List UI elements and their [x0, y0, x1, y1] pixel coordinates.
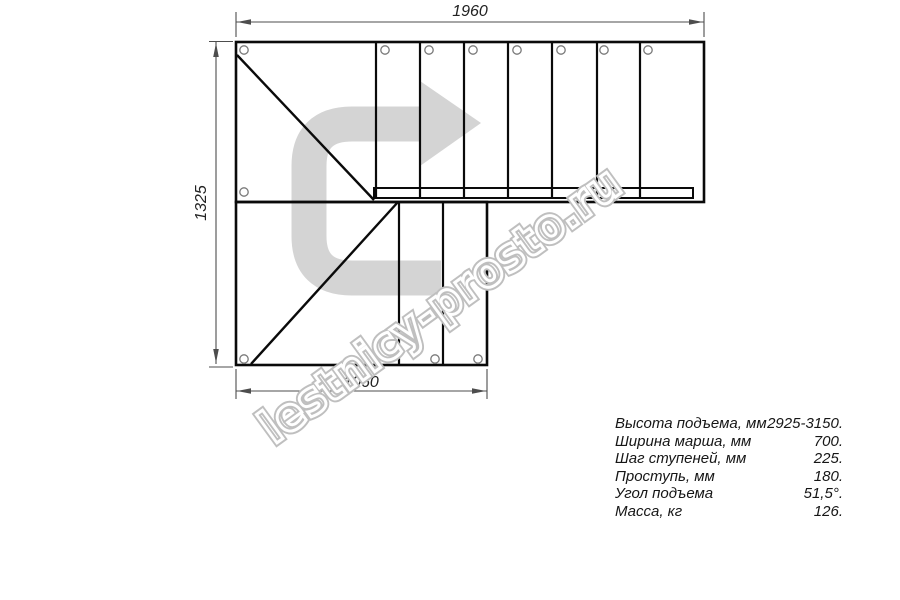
spec-label: Шаг ступеней, мм [615, 450, 746, 468]
dim-arrow [213, 349, 219, 363]
dim-arrow [472, 388, 486, 393]
spec-value: 225. [814, 450, 843, 468]
mount-hole [600, 46, 608, 54]
dim-left-label: 1325 [193, 185, 210, 221]
direction-arrow [309, 81, 481, 278]
dim-top-label: 1960 [452, 3, 488, 20]
mount-hole [469, 46, 477, 54]
spec-value: 51,5°. [804, 485, 843, 503]
direction-arrow-head [420, 81, 481, 166]
dim-arrow [237, 388, 251, 393]
mount-hole [240, 188, 248, 196]
spec-label: Проступь, мм [615, 468, 715, 486]
spec-table: Высота подъема, мм 2925-3150. Ширина мар… [615, 415, 843, 520]
spec-row: Масса, кг 126. [615, 503, 843, 521]
dimension-left: 1325 [193, 42, 233, 368]
upper-stringer [374, 188, 693, 198]
dim-arrow [237, 19, 251, 24]
spec-label: Ширина марша, мм [615, 433, 751, 451]
mount-hole [381, 46, 389, 54]
dimension-top: 1960 [236, 3, 704, 37]
spec-value: 180. [814, 468, 843, 486]
spec-row: Ширина марша, мм 700. [615, 433, 843, 451]
spec-value: 126. [814, 503, 843, 521]
spec-row: Проступь, мм 180. [615, 468, 843, 486]
mount-hole [513, 46, 521, 54]
mount-hole [557, 46, 565, 54]
spec-row: Угол подъема 51,5°. [615, 485, 843, 503]
dim-arrow [213, 43, 219, 57]
spec-row: Шаг ступеней, мм 225. [615, 450, 843, 468]
mount-hole [240, 46, 248, 54]
spec-label: Высота подъема, мм [615, 415, 767, 433]
mount-hole [644, 46, 652, 54]
mount-hole [240, 355, 248, 363]
mount-hole [431, 355, 439, 363]
spec-label: Угол подъема [615, 485, 713, 503]
spec-label: Масса, кг [615, 503, 682, 521]
spec-value: 700. [814, 433, 843, 451]
mount-hole [474, 355, 482, 363]
mount-hole [425, 46, 433, 54]
spec-row: Высота подъема, мм 2925-3150. [615, 415, 843, 433]
spec-value: 2925-3150. [767, 415, 843, 433]
dim-arrow [689, 19, 703, 24]
